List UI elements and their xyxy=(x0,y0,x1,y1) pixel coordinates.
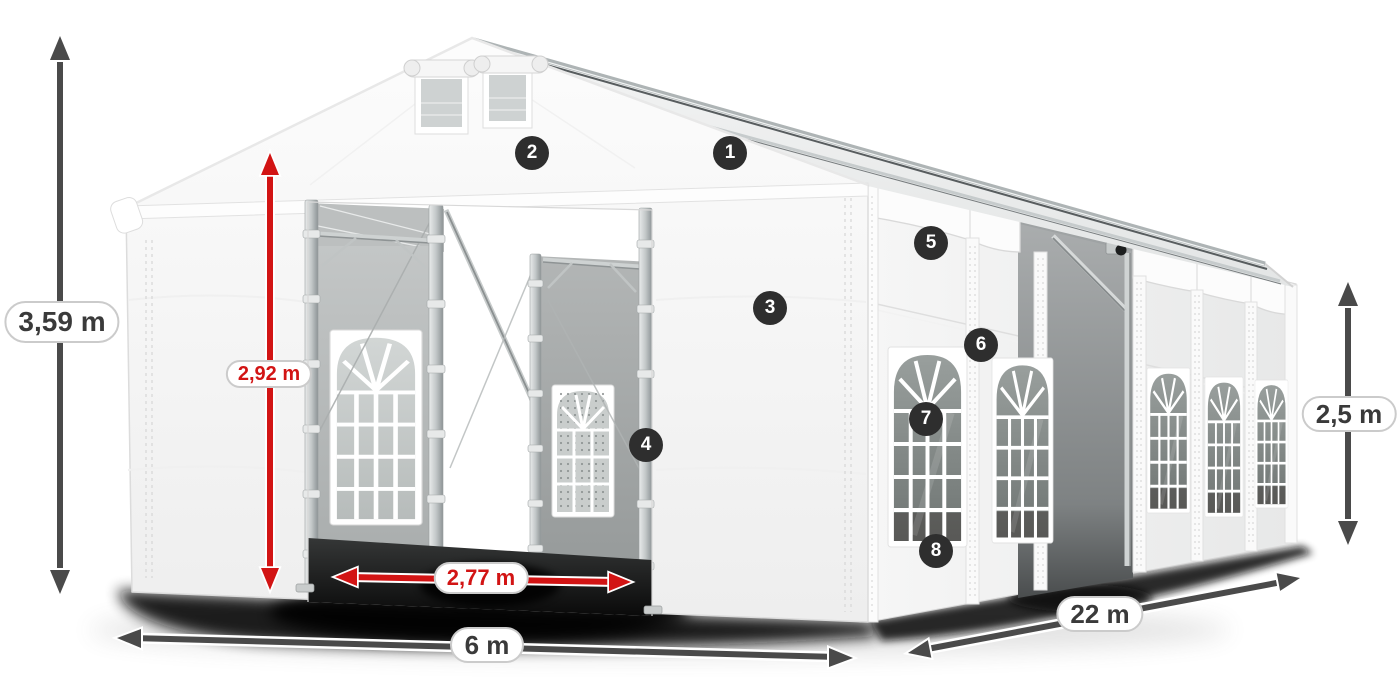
interior-door-left xyxy=(312,218,436,588)
callout-4[interactable]: 4 xyxy=(629,428,663,462)
callout-1[interactable]: 1 xyxy=(713,136,747,170)
dimension-label-entrance-width: 2,77 m xyxy=(434,562,529,594)
tent-dimension-diagram: 3,59 m 2,92 m 2,77 m 6 m 22 m 2,5 m 1 2 … xyxy=(0,0,1400,700)
callout-8[interactable]: 8 xyxy=(919,534,953,568)
callout-2[interactable]: 2 xyxy=(515,136,549,170)
dimension-label-gable-width: 6 m xyxy=(450,627,524,663)
entrance-opening xyxy=(296,200,662,616)
tent-illustration xyxy=(0,0,1400,700)
dimension-label-side-length: 22 m xyxy=(1056,596,1143,632)
interior-brace-gap xyxy=(444,204,536,560)
dimension-label-side-height: 2,5 m xyxy=(1302,396,1397,432)
callout-3[interactable]: 3 xyxy=(753,291,787,325)
interior-door-right xyxy=(540,262,642,572)
callout-5[interactable]: 5 xyxy=(914,226,948,260)
callout-7[interactable]: 7 xyxy=(909,402,943,436)
callout-6[interactable]: 6 xyxy=(964,328,998,362)
dimension-label-entrance-height: 2,92 m xyxy=(226,360,312,388)
dimension-label-total-height: 3,59 m xyxy=(4,301,119,343)
